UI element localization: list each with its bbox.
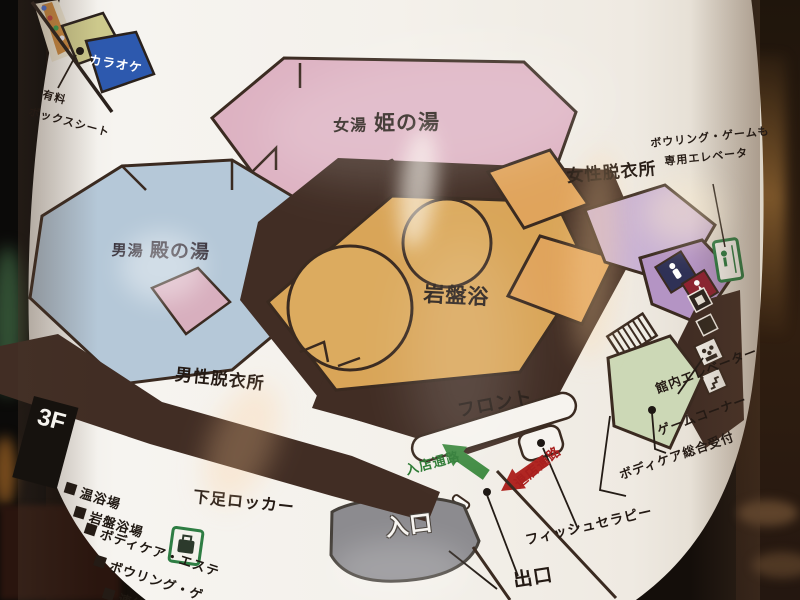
legend-swatch: [64, 482, 78, 496]
label-womens-bath: 女湯 姫の湯: [333, 112, 440, 136]
stone-sauna-circle: [403, 199, 491, 287]
label-entrance: 入口: [384, 510, 435, 540]
womens-bath-prefix: 女湯: [333, 117, 367, 135]
legend-swatch: [73, 506, 87, 520]
mens-bath-prefix: 男湯: [111, 242, 144, 260]
stone-sauna-circle: [288, 246, 412, 370]
womens-bath-name: 姫の湯: [374, 111, 440, 135]
fish-therapy-dot: [537, 439, 545, 447]
label-mens-bath: 男湯 殿の湯: [111, 240, 210, 263]
legend-swatch: [84, 522, 98, 536]
floor-map-graphic: [0, 0, 800, 600]
pillar-right-shade: [690, 0, 760, 600]
game-zone-dot: [648, 406, 656, 414]
exit-dot: [483, 488, 491, 496]
legend-swatch: [102, 587, 116, 600]
legend-swatch: [93, 555, 107, 569]
label-stone-sauna: 岩盤浴: [423, 284, 490, 309]
mens-bath-name: 殿の湯: [150, 240, 211, 263]
pillar-floor-map-photo: カラオケ 有料 ボックスシート 女湯 姫の湯 男湯 殿の湯 女性脱衣所 ボウリン…: [0, 0, 800, 600]
